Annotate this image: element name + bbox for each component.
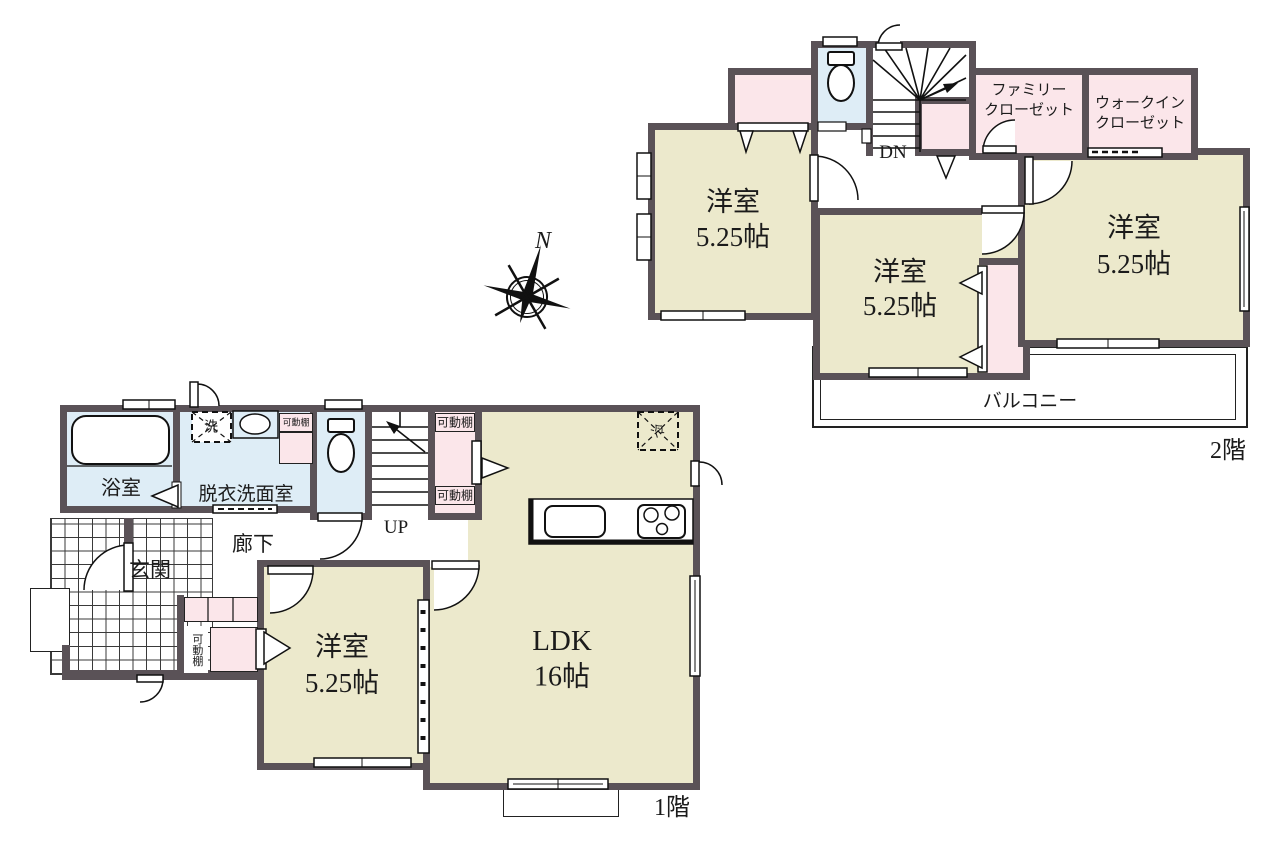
floor1-label: 1階 <box>654 793 690 823</box>
shelf-label-top: 可動棚 <box>437 416 473 431</box>
floor-plan: N 洋室 5.25帖 洋室 5.25帖 洋室 5.25帖 ファミリー クローゼッ… <box>0 0 1280 850</box>
walkin-closet-label-2: クローゼット <box>1095 115 1185 134</box>
bedroom-2f-east-name: 洋室 <box>1107 212 1161 246</box>
bedroom-1f <box>257 560 430 770</box>
washer-label: 洗 <box>204 419 218 437</box>
bedroom-1f-size: 5.25帖 <box>305 667 379 701</box>
terrace-step <box>503 787 619 817</box>
wall-segment <box>979 258 1023 265</box>
bedroom-2f-east-size: 5.25帖 <box>1097 248 1171 282</box>
closet-2f-stairs <box>915 97 976 156</box>
wall-segment <box>365 405 435 412</box>
floor2-label: 2階 <box>1210 436 1246 466</box>
toilet-2f <box>811 41 873 130</box>
porch-step <box>30 588 70 652</box>
entrance-closet <box>210 627 258 672</box>
bedroom-2f-west-size: 5.25帖 <box>696 221 770 255</box>
wall-segment <box>177 595 184 675</box>
bathroom-label: 浴室 <box>101 477 141 502</box>
ldk-extension <box>423 567 475 790</box>
closet-2f-west <box>728 68 818 130</box>
stairs-1f-icon <box>372 412 428 505</box>
shelf-label-entrance: 可動棚 <box>189 634 203 667</box>
shelf-label-bottom: 可動棚 <box>437 489 473 504</box>
bedroom-1f-name: 洋室 <box>315 631 369 665</box>
hallway-label: 廊下 <box>232 531 274 557</box>
bedroom-2f-middle-size: 5.25帖 <box>863 290 937 324</box>
stairs-down-label: DN <box>879 141 906 165</box>
shoe-cabinet <box>184 597 258 622</box>
entrance-label: 玄関 <box>129 557 171 583</box>
ldk-size: 16帖 <box>534 660 590 695</box>
bedroom-2f-west-name: 洋室 <box>706 186 760 220</box>
walkin-closet-label-1: ウォークイン <box>1095 95 1185 114</box>
family-closet-label-2: クローゼット <box>984 102 1074 121</box>
ldk <box>468 405 700 790</box>
compass-icon <box>477 233 585 335</box>
toilet-1f <box>310 405 372 520</box>
compass-north-label: N <box>535 226 551 256</box>
washroom-label: 脱衣洗面室 <box>198 483 293 507</box>
family-closet-label-1: ファミリー <box>991 82 1066 101</box>
ldk-name: LDK <box>532 623 592 659</box>
washroom-shelf <box>279 432 313 464</box>
wall-segment <box>124 518 133 547</box>
bedroom-2f-middle-name: 洋室 <box>873 256 927 290</box>
balcony-label: バルコニー <box>983 390 1078 414</box>
shelf-label-washroom: 可動棚 <box>282 417 309 428</box>
stairs-up-label: UP <box>384 516 408 540</box>
